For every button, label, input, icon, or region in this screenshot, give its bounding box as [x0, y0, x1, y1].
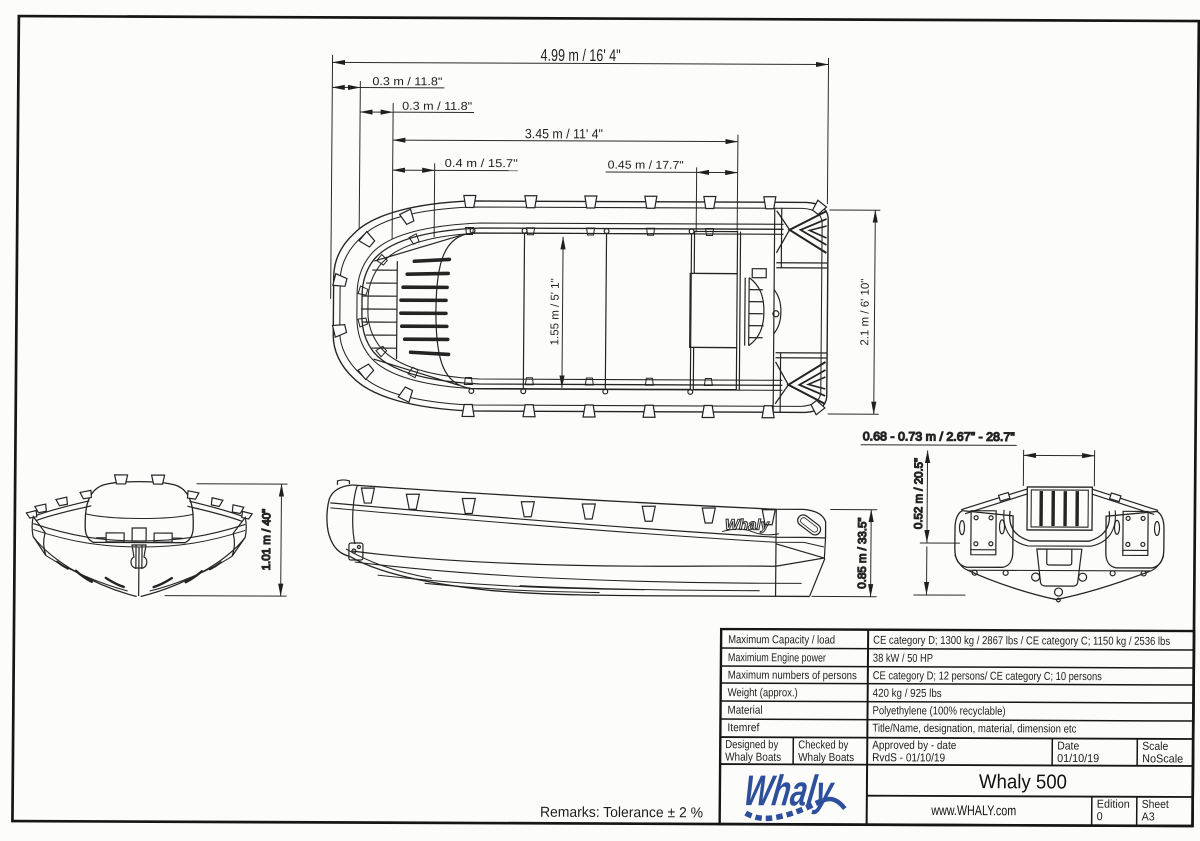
- svg-text:Sheet: Sheet: [1142, 799, 1170, 811]
- svg-text:0: 0: [1097, 811, 1103, 823]
- svg-text:0.3 m / 11.8": 0.3 m / 11.8": [402, 101, 472, 113]
- svg-text:Maximum numbers of persons: Maximum numbers of persons: [728, 670, 857, 683]
- svg-text:420 kg / 925 lbs: 420 kg / 925 lbs: [873, 688, 942, 700]
- svg-text:CE category D; 1300 kg / 2867: CE category D; 1300 kg / 2867 lbs / CE c…: [873, 635, 1170, 648]
- svg-text:Edition: Edition: [1097, 799, 1130, 811]
- svg-text:Itemref: Itemref: [727, 722, 760, 734]
- svg-text:1.01 m / 40": 1.01 m / 40": [261, 509, 273, 571]
- svg-text:Scale: Scale: [1142, 741, 1168, 753]
- svg-text:Designed by: Designed by: [725, 739, 778, 751]
- svg-text:www.WHALY.com: www.WHALY.com: [930, 802, 1016, 818]
- svg-text:Whaly 500: Whaly 500: [979, 771, 1067, 793]
- svg-text:Remarks: Tolerance ± 2 %: Remarks: Tolerance ± 2 %: [540, 805, 703, 822]
- svg-text:0.3 m / 11.8": 0.3 m / 11.8": [372, 76, 442, 88]
- svg-text:0.68 - 0.73 m / 2.67" - 28.7": 0.68 - 0.73 m / 2.67" - 28.7": [863, 429, 1015, 444]
- svg-text:1.55 m / 5' 1": 1.55 m / 5' 1": [549, 278, 562, 345]
- svg-text:Polyethylene (100% recyclable): Polyethylene (100% recyclable): [872, 705, 1005, 718]
- svg-text:0.85 m / 33.5": 0.85 m / 33.5": [857, 518, 870, 589]
- svg-text:Checked by: Checked by: [798, 739, 848, 751]
- svg-text:3.45 m / 11' 4": 3.45 m / 11' 4": [525, 126, 603, 141]
- svg-text:38 kW / 50 HP: 38 kW / 50 HP: [873, 653, 933, 665]
- svg-text:Whaly Boats: Whaly Boats: [798, 752, 854, 764]
- svg-text:4.99 m / 16' 4": 4.99 m / 16' 4": [541, 46, 621, 65]
- svg-text:0.4 m / 15.7": 0.4 m / 15.7": [445, 158, 518, 170]
- svg-text:Whaly: Whaly: [723, 517, 771, 534]
- svg-text:Material: Material: [727, 705, 762, 717]
- svg-text:Whaly Boats: Whaly Boats: [725, 752, 781, 764]
- svg-text:0.45 m / 17.7": 0.45 m / 17.7": [608, 160, 684, 172]
- svg-text:RvdS - 01/10/19: RvdS - 01/10/19: [872, 752, 945, 764]
- svg-text:Maximum Capacity / load: Maximum Capacity / load: [728, 634, 835, 646]
- svg-text:CE category D; 12 persons/ CE: CE category D; 12 persons/ CE category C…: [873, 670, 1102, 683]
- svg-text:Maximium Engine power: Maximium Engine power: [728, 652, 826, 664]
- svg-text:NoScale: NoScale: [1142, 753, 1183, 765]
- svg-text:Approved by - date: Approved by - date: [872, 740, 956, 752]
- svg-text:A3: A3: [1142, 811, 1155, 823]
- svg-text:Date: Date: [1057, 740, 1079, 752]
- svg-text:Whaly: Whaly: [741, 767, 837, 815]
- svg-text:Weight (approx.): Weight (approx.): [728, 687, 798, 699]
- svg-text:2.1 m / 6' 10": 2.1 m / 6' 10": [859, 279, 872, 346]
- svg-text:01/10/19: 01/10/19: [1057, 753, 1099, 765]
- svg-text:0.52 m / 20.5": 0.52 m / 20.5": [913, 458, 926, 529]
- svg-text:Title/Name, designation, mater: Title/Name, designation, material, dimen…: [872, 723, 1076, 736]
